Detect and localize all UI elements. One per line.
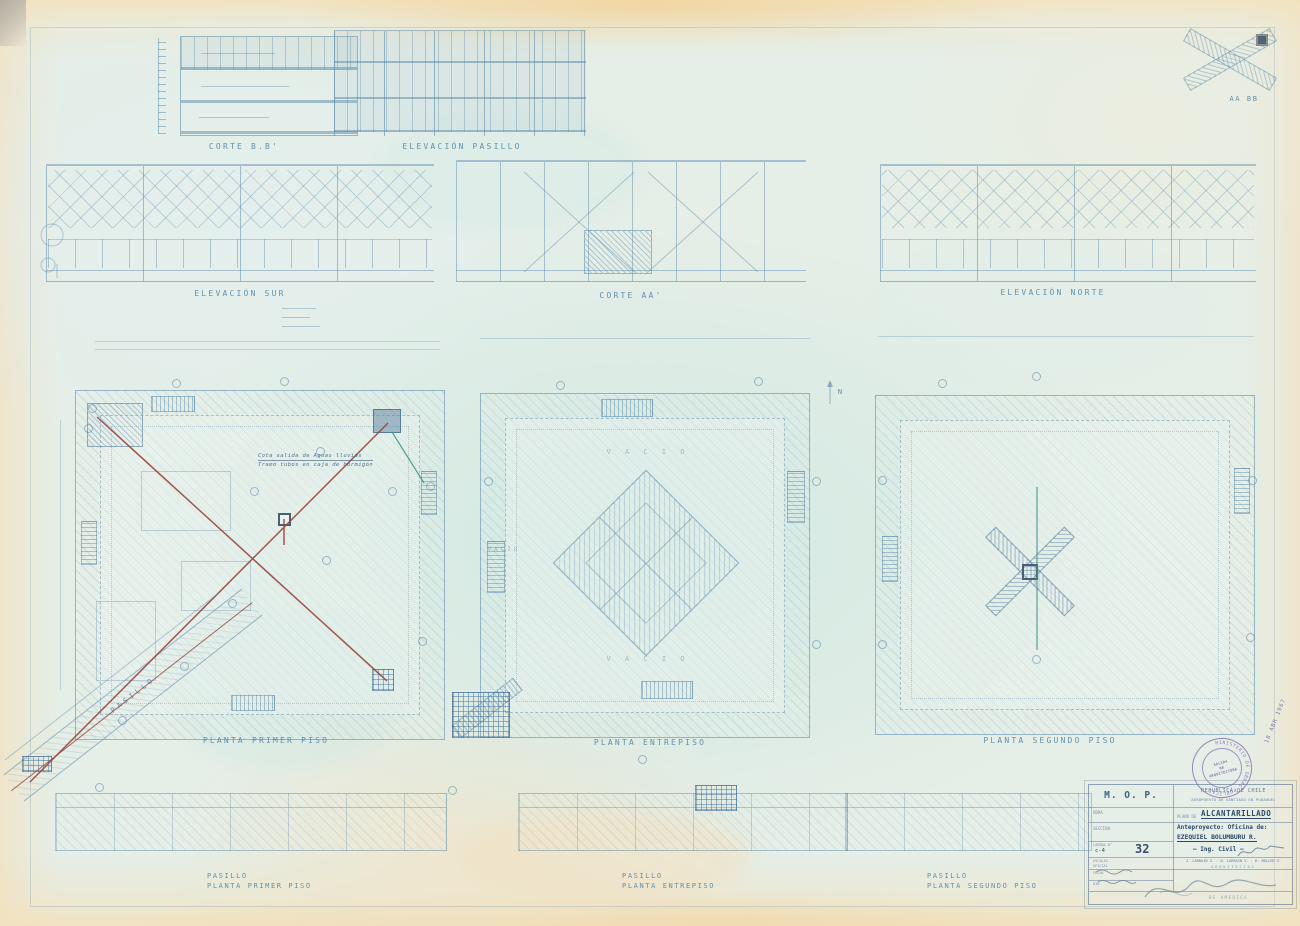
blueprint-sheet: PASILLO <box>0 0 1300 926</box>
corte-bb-drawing <box>158 36 360 138</box>
label-north: N <box>838 388 842 396</box>
label-vacio-bottom: V A C I O <box>607 655 690 663</box>
mop-logo: M. O. P. <box>1089 790 1173 801</box>
elevacion-sur-drawing <box>46 164 434 282</box>
label-vacio-left: VACIO <box>487 546 520 553</box>
key-dark-square <box>1256 34 1268 46</box>
escala-label: ESCALAS <box>1093 859 1108 863</box>
scale-note <box>282 317 310 318</box>
lamina-code: c-4 <box>1095 848 1105 854</box>
pasillo3-line2: PLANTA SEGUNDO PISO <box>927 881 1037 891</box>
pasillo3-line1: PASILLO <box>927 871 1037 881</box>
fecha-label: FECHA <box>1093 871 1104 875</box>
label-pasillo-primer: PASILLO PLANTA PRIMER PISO <box>207 871 312 891</box>
pasillo2-line2: PLANTA ENTREPISO <box>622 881 715 891</box>
corte-core <box>584 230 652 274</box>
label-planta-entrepiso: PLANTA ENTREPISO <box>594 738 706 747</box>
detail-rooms-box <box>695 785 737 811</box>
label-planta-primer-piso: PLANTA PRIMER PISO <box>203 736 329 745</box>
label-corte-aa: CORTE AA' <box>599 291 662 300</box>
scale-note <box>282 326 320 327</box>
section-box <box>180 36 358 136</box>
scale-note <box>282 308 316 309</box>
note-line1: Cota salida de Aguas lluvias <box>258 452 373 461</box>
core-box <box>1022 564 1038 580</box>
architects-names: J. LARRAIN V. · D. LARRAIN V. · R. MULLE… <box>1175 859 1292 863</box>
anteproyecto-line1: Anteproyecto: Oficina de: <box>1177 824 1267 831</box>
pasillo1-line2: PLANTA PRIMER PISO <box>207 881 312 891</box>
lamina-label: LAMINA N° <box>1093 843 1112 847</box>
dimension-line <box>95 341 440 342</box>
plano-value: ALCANTARILLADO <box>1201 809 1271 819</box>
planta-segundo-piso-drawing <box>875 395 1255 735</box>
obra-label: OBRA <box>1093 810 1103 815</box>
edge-detail-box <box>22 756 52 772</box>
key-location-diagram <box>1186 30 1274 96</box>
architects-title: ARQUITECTOS <box>1175 865 1292 869</box>
dimension-line <box>60 420 61 690</box>
pasillo-strip-segundo <box>845 793 1092 851</box>
anteproyecto-line2: EZEQUIEL BOLUMBURU R. <box>1177 834 1257 842</box>
label-pasillo-entrepiso: PASILLO PLANTA ENTREPISO <box>622 871 715 891</box>
label-elevacion-norte: ELEVACIÓN NORTE <box>1000 288 1105 297</box>
pasillo-strip-entrepiso <box>518 793 848 851</box>
project-label: AEROPUERTO DE SANTIAGO EN PUDAHUEL <box>1175 797 1292 802</box>
footer-text: DE AMERICA <box>1209 895 1248 900</box>
oficial-label: OFICIAL <box>1093 864 1108 868</box>
dib-label: DIB. <box>1093 882 1101 886</box>
title-block: M. O. P. REPUBLICA DE CHILE AEROPUERTO D… <box>1088 784 1293 905</box>
label-planta-segundo-piso: PLANTA SEGUNDO PISO <box>983 736 1116 745</box>
pasillo2-line1: PASILLO <box>622 871 715 881</box>
plano-de-label: PLANO DE <box>1177 814 1196 819</box>
scan-corner-shadow <box>0 0 26 46</box>
lamina-numero: 32 <box>1135 842 1149 856</box>
label-vacio-top: V A C I O <box>607 448 690 456</box>
pasillo-strip-primer <box>55 793 447 851</box>
dimension-line <box>95 349 440 350</box>
chamber-dark <box>373 409 401 433</box>
dimension-line <box>480 338 810 339</box>
label-key-diagram: AA BB <box>1229 95 1258 103</box>
elevacion-pasillo-drawing <box>334 30 586 136</box>
sewer-chamber <box>372 669 394 691</box>
section-scale-ruler <box>158 38 166 134</box>
dimension-line <box>878 336 1254 337</box>
detail-rooms-box <box>452 692 510 738</box>
pasillo1-line1: PASILLO <box>207 871 312 881</box>
note-line2: Tramo tubos en caja de hormigón <box>258 461 373 469</box>
ing-civil-label: — Ing. Civil — <box>1193 846 1244 853</box>
elevacion-norte-drawing <box>880 164 1256 282</box>
corte-aa-drawing <box>456 160 806 282</box>
handwritten-note: Cota salida de Aguas lluvias Tramo tubos… <box>258 452 373 469</box>
elevation-columns <box>334 31 586 136</box>
label-pasillo-segundo: PASILLO PLANTA SEGUNDO PISO <box>927 871 1037 891</box>
seccion-label: SECCION <box>1093 826 1110 831</box>
sewer-chamber <box>278 513 291 526</box>
label-corte-bb: CORTE B.B' <box>209 142 279 151</box>
label-elevacion-sur: ELEVACIÓN SUR <box>194 289 285 298</box>
label-elevacion-pasillo: ELEVACIÓN PASILLO <box>402 142 521 151</box>
